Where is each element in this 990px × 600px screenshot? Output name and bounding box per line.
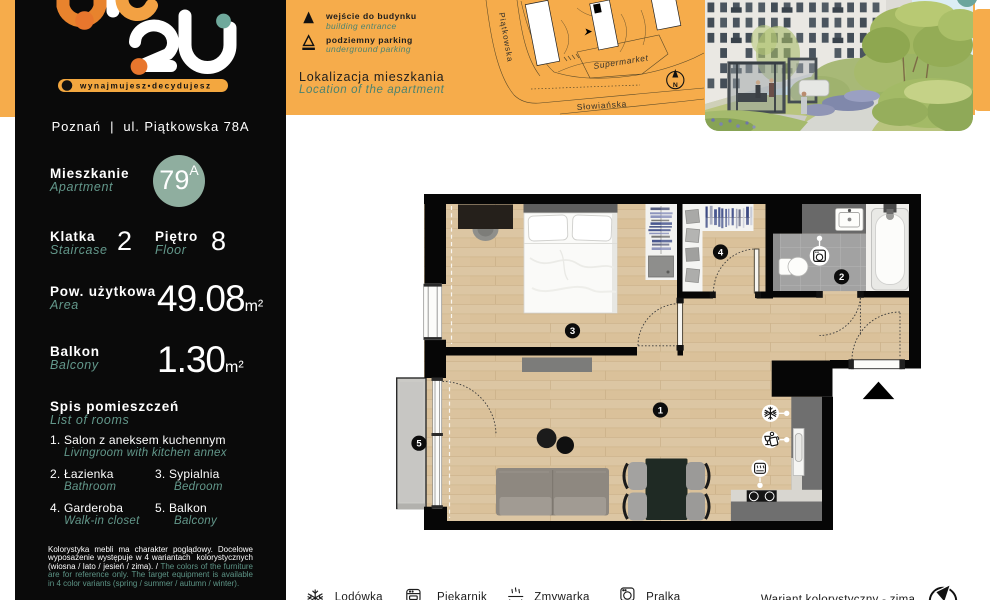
svg-text:4: 4 bbox=[718, 247, 724, 258]
svg-text:1: 1 bbox=[658, 405, 664, 416]
svg-text:Piekarnik: Piekarnik bbox=[437, 592, 487, 600]
svg-text:3: 3 bbox=[570, 326, 575, 337]
svg-text:Wariant kolorystyczny - zima: Wariant kolorystyczny - zima bbox=[761, 594, 916, 600]
svg-text:2: 2 bbox=[839, 272, 844, 283]
svg-text:Zmywarka: Zmywarka bbox=[534, 592, 590, 600]
svg-text:5: 5 bbox=[416, 439, 422, 450]
svg-text:Lodówka: Lodówka bbox=[335, 592, 383, 600]
svg-text:Pralka: Pralka bbox=[646, 592, 681, 600]
